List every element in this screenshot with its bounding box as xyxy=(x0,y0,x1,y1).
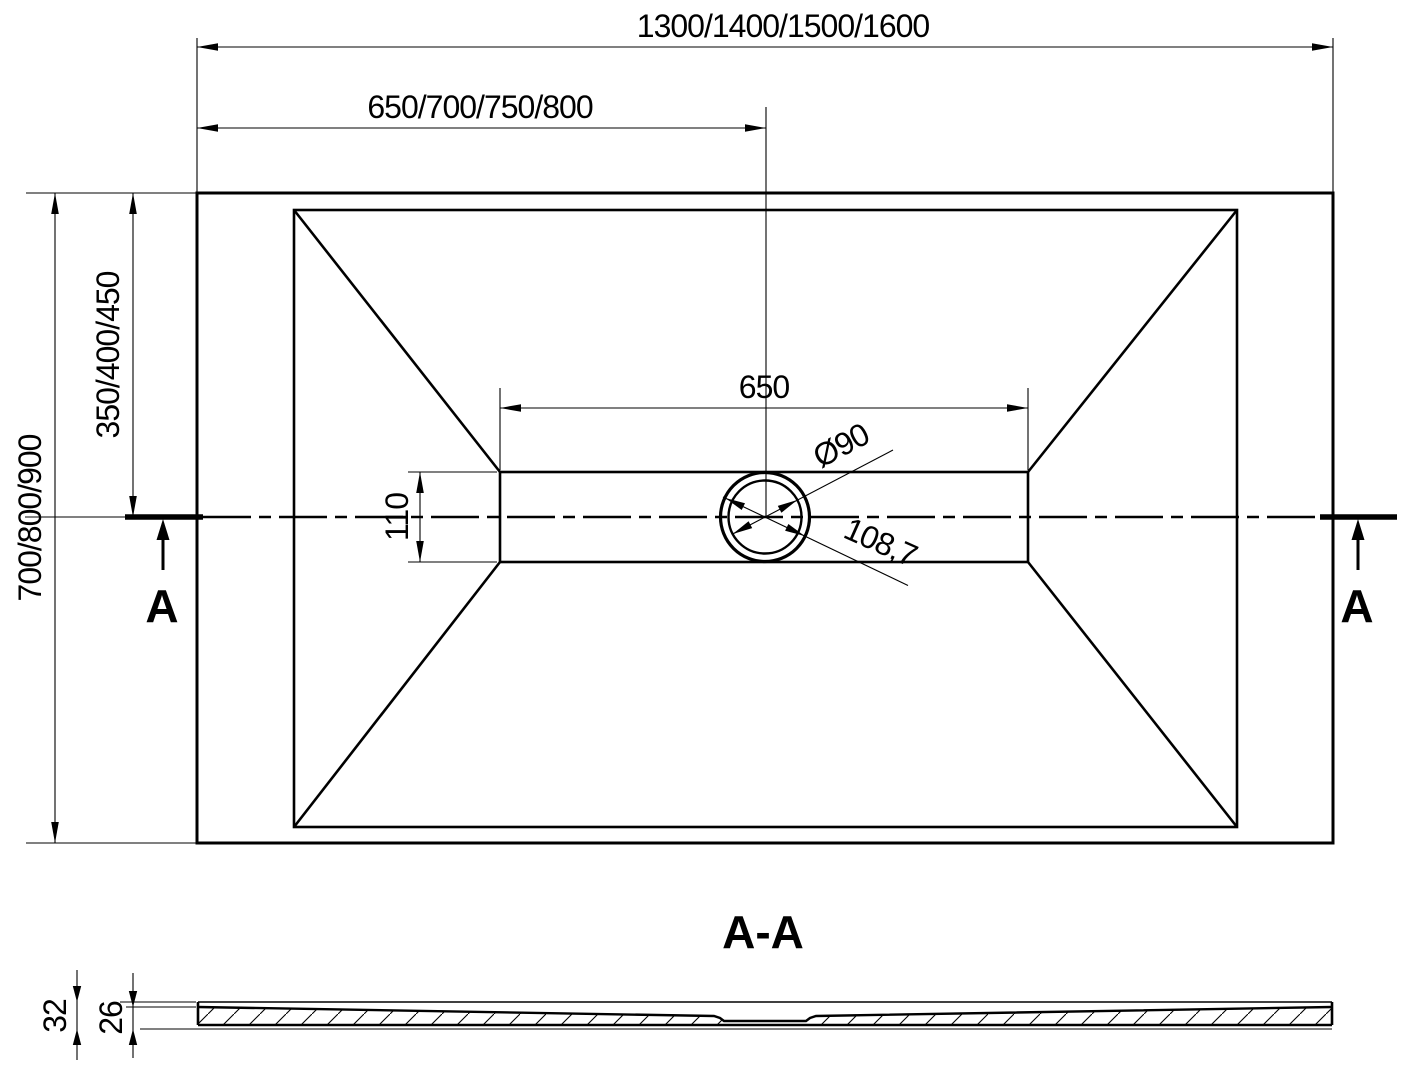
section-marker-right-label: A xyxy=(1340,580,1373,632)
drawing-canvas: 1300/1400/1500/1600 650/700/750/800 700/… xyxy=(0,0,1414,1066)
dim-overall-width-label: 1300/1400/1500/1600 xyxy=(637,8,930,44)
shower-tray-technical-drawing: 1300/1400/1500/1600 650/700/750/800 700/… xyxy=(0,0,1414,1066)
dim-total-height-label: 32 xyxy=(37,999,73,1033)
section-arrow-right-icon xyxy=(1352,519,1365,540)
dim-channel-length: 650 xyxy=(500,369,1028,412)
dim-drain-diameter-label: Ø90 xyxy=(807,416,875,475)
section-arrow-left-icon xyxy=(157,519,170,540)
plan-view: 1300/1400/1500/1600 650/700/750/800 700/… xyxy=(12,8,1397,843)
dim-channel-width-label: 110 xyxy=(379,493,415,541)
dim-overall-width: 1300/1400/1500/1600 xyxy=(197,8,1333,51)
dim-channel-length-label: 650 xyxy=(739,369,790,405)
dim-drain-outer-diameter: 108,7 xyxy=(723,497,922,586)
section-marker-right: A xyxy=(1340,519,1373,632)
dim-overall-depth: 700/800/900 xyxy=(12,193,59,843)
dim-drain-outer-diameter-label: 108,7 xyxy=(839,510,922,574)
section-hatch-left xyxy=(198,1007,724,1025)
extension-lines xyxy=(26,38,1333,843)
section-hatch-right xyxy=(806,1007,1332,1025)
dim-inner-height-label: 26 xyxy=(93,1001,129,1035)
section-extension-lines xyxy=(120,1002,196,1007)
section-title: A-A xyxy=(722,906,804,958)
dim-inner-height: 26 xyxy=(93,973,137,1058)
section-view: A-A 32 26 xyxy=(37,906,1332,1060)
section-marker-left: A xyxy=(145,519,178,632)
dim-center-width: 650/700/750/800 xyxy=(197,89,766,132)
dim-center-width-label: 650/700/750/800 xyxy=(367,89,592,125)
dim-overall-depth-label: 700/800/900 xyxy=(12,434,48,601)
section-marker-left-label: A xyxy=(145,580,178,632)
dim-center-depth: 350/400/450 xyxy=(90,193,137,517)
dim-center-depth-label: 350/400/450 xyxy=(90,271,126,438)
dim-total-height: 32 xyxy=(37,970,81,1060)
